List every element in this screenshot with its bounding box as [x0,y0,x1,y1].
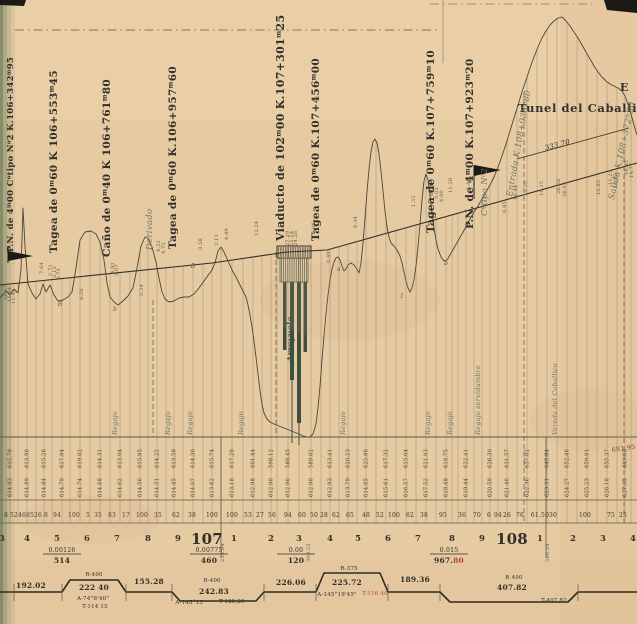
terrain-marker: b [444,260,448,267]
watercourse-label: Regajo [446,411,454,436]
grade-elevation: 614.56 [138,478,144,497]
alignment-label: A-145°19'45" [316,592,357,598]
profile-sheet: ArroyueloTunel del Caballico.333.70EP.N.… [0,0,637,624]
partial-distance: 100 [226,512,238,519]
grade-elevation: 614.79 [60,478,66,497]
partial-distance: 62 [332,512,340,519]
alignment-label: 189.36 [400,575,430,584]
grade-elevation: 614.45 [172,478,178,497]
grade-elevation: 619.44 [464,478,470,497]
ordinate-height: 0.58 [198,238,204,250]
watercourse-label: Regajo [111,411,119,436]
watercourse-label: Regajo [424,411,432,436]
alignment-label: R-400 [85,572,103,578]
ordinate-height: 2.13 [214,234,220,246]
alignment-label: 407.82 [497,583,527,592]
ground-elevation: 589.02 [309,449,315,468]
ordinate-height: 18.15 [539,181,545,196]
station-number: 4 [24,534,30,544]
alignment-label: T-116 40 [362,591,388,597]
grade-elevation: 614.93 [8,478,14,497]
ground-elevation: 614.31 [98,449,104,468]
partial-distance: 95 [439,512,447,519]
ground-elevation: 618.75 [444,449,450,468]
alignment-label: 192.02 [16,581,46,590]
chainage-note: 586.54 [545,543,551,562]
ground-elevation: 655.37 [605,449,611,468]
grade-elevation: 612.90 [269,478,275,497]
ordinate-height: 11.42 [11,289,17,304]
paper-stain [20,496,160,544]
terrain-marker: B [190,263,196,270]
ground-elevation: 613.04 [118,449,124,468]
grade-elevation: 614.51 [155,478,161,497]
grade-elevation: 627.05 [623,478,629,497]
ordinate-height: 16.85 [596,180,602,195]
alignment-label: 242.83 [199,587,229,596]
watercourse-label: Regajo [339,411,347,436]
grade-elevation: 612.93 [328,478,334,497]
grade-elevation: 614.07 [191,478,197,497]
alignment-label: 222 40 [79,583,109,592]
partial-distance: 61.50 [531,512,549,519]
station-number: 9 [175,534,181,544]
grade-elevation: 613.62 [210,478,216,497]
binding-gutter [0,0,3,624]
ordinate-height: 24.26 [293,231,299,246]
station-number: 4 [630,534,636,544]
partial-distance: 27 [256,512,264,519]
station-number: 8 [449,534,455,544]
partial-distance: 70 [473,512,481,519]
partial-distance: 65 [346,512,354,519]
station-number: 9 [479,534,485,544]
ground-elevation: 615.95 [138,449,144,468]
ordinate-height: 8.56 [79,288,85,300]
watercourse-label: Regajo [237,411,245,436]
station-number: 3 [0,534,5,544]
ground-elevation: 617.32 [384,449,390,468]
grade-elevation: 616.57 [404,478,410,497]
ground-elevation: 620.23 [346,449,352,468]
grade-elevation: 612.90 [286,478,292,497]
partial-distance: 53 [244,512,252,519]
gradient-length: 514 [54,556,70,565]
ordinate-height: 1.52 [411,195,417,207]
grade-elevation: 625.23 [585,478,591,497]
structure-label: Tagea de 0m60 K 106+553m45 [48,70,60,253]
structure-label: Tagea de 0m60 K.107+759m10 [425,50,437,233]
grade-elevation: 613.79 [346,478,352,497]
ordinate-height: 6.85 [502,201,508,213]
ordinate-height: 10.44 [513,185,519,200]
alignment-label: A-74°8'40" [76,596,109,602]
station-number: 7 [415,534,421,544]
alignment-label: T-114 15 [82,604,108,610]
ground-elevation: 613.41 [328,449,334,468]
station-number: 4 [327,534,333,544]
watercourse-label: Regajo [164,411,172,436]
ordinate-height: 5.45 [466,178,472,190]
gradient-value: 0.015 [440,547,459,554]
gradient-value: 0.00 [289,547,304,554]
ordinate-height: 5.34 [139,284,145,296]
top-left-corner-mark [0,0,26,6]
partial-distance: 38 [420,512,428,519]
ordinate-height: 11.05 [613,173,619,188]
ground-elevation: 615.26 [42,449,48,468]
kilometre-number: 107 [191,530,223,548]
partial-distance: 62 [406,512,414,519]
alignment-label: 226.06 [276,578,306,587]
gradient-length: 967.80 [434,556,464,565]
station-number: 6 [385,534,391,544]
grade-elevation: 617.52 [424,478,430,497]
alignment-label: R 400 [505,575,523,581]
partial-distance: 48 [362,512,370,519]
alignment-label: R-400 [203,578,221,584]
station-number: 1 [231,534,237,544]
ground-elevation: 617.84 [60,449,66,468]
chainage-note: 309.55 [306,543,312,562]
partial-distance: 8 [4,512,8,519]
alignment-label: 225.72 [332,578,362,587]
ordinate-height: 3.73 [56,268,62,280]
grade-elevation: 622.36 [525,478,531,497]
ordinate-height: 2.07 [114,264,120,276]
ground-elevation: 614.30 [191,449,197,468]
partial-distance: 62 [172,512,180,519]
grade-elevation: 614.62 [118,478,124,497]
grade-elevation: 624.27 [565,478,571,497]
alignment-label: R-375 [340,566,358,572]
watercourse-label: Regajo [186,411,194,436]
partial-distance: 28 [320,512,328,519]
structure-label: P.N. de 4m00 Cotipo No2 K.106+342m95 [6,57,16,252]
terrain-marker: b [113,306,117,313]
alignment-label: A-145°13' [174,600,204,606]
grade-elevation: 620.59 [488,478,494,497]
partial-distance: 76 [516,512,524,519]
ordinate-height: 5.06 [311,222,317,234]
station-number: 3 [296,534,302,544]
partial-distance: 100 [206,512,218,519]
ordinate-height: 4.49 [224,228,230,240]
grade-elevation: 613.18 [230,478,236,497]
grade-elevation: 612.90 [309,478,315,497]
ground-elevation: 615.74 [210,449,216,468]
ground-elevation: 598.12 [269,449,275,468]
ground-elevation: 631.57 [505,449,511,468]
station-number: 5 [355,534,361,544]
ground-elevation: 621.93 [424,449,430,468]
ground-elevation: 615.78 [8,449,14,468]
station-number: 2 [570,534,576,544]
tunnel-exit-letter: E [620,81,629,94]
partial-distance: 100 [579,512,591,519]
ground-elevation: 613.58 [172,449,178,468]
partial-distance: 50 [310,512,318,519]
gradient-value: 0.00775 [196,547,223,554]
grade-elevation: 614.84 [42,478,48,497]
ground-elevation: 625.86 [364,449,370,468]
ordinate-height: 14.77 [629,163,635,178]
ordinate-height: 11.28 [448,178,454,193]
partial-distance: 100 [388,512,400,519]
watercourse-label: Regajo servidumbre [474,365,482,436]
ordinate-height: 13.24 [254,221,260,236]
ground-elevation: 601.44 [251,449,257,468]
ground-elevation: 614.22 [155,449,161,468]
grade-elevation: 621.40 [505,478,511,497]
grade-elevation: 626.18 [605,478,611,497]
ground-elevation: 622.41 [464,449,470,468]
alignment-label: T-407 82 [541,598,567,604]
ground-elevation: 613.90 [25,449,31,468]
partial-distance: 25 [619,512,627,519]
partial-distance: 52 [10,512,18,519]
ordinate-height: 4.00 [439,190,445,202]
structure-label: Tagea de 0m60 K.106+957m60 [167,66,179,249]
ground-elevation: 659.91 [585,449,591,468]
grade-elevation: 615.61 [384,478,390,497]
grade-elevation: 614.74 [78,478,84,497]
ground-elevation: 588.45 [286,449,292,468]
ordinate-height: 8.34 [353,216,359,228]
grade-elevation: 612.98 [251,478,257,497]
structure-label: Derivado [145,209,155,251]
tunnel-label: Tunel del Caballico. [518,101,637,115]
ordinate-height: 4.72 [161,242,167,254]
gradient-length: 120 [288,556,304,565]
ground-elevation: 615.04 [404,449,410,468]
grade-elevation: 614.89 [25,478,31,497]
ground-elevation: 645.84 [545,449,551,468]
paper-stain [260,260,440,340]
ordinate-height: 5.75 [482,196,488,208]
ground-elevation: 652.46 [565,449,571,468]
grade-elevation: 614.68 [98,478,104,497]
grade-elevation: 623.31 [545,478,551,497]
gradient-length: 460 [201,556,217,565]
kilometre-number: 108 [496,530,528,548]
partial-distance: 60 [298,512,306,519]
ground-elevation: 637.02 [525,449,531,468]
structure-label: Tagea de 0m60 K.107+456m00 [310,58,322,241]
station-number: 8 [145,534,151,544]
station-number: 1 [537,534,543,544]
terrain-marker: B [57,301,63,308]
partial-distance: 6 [487,512,491,519]
ground-elevation: 617.26 [230,449,236,468]
structure-label: Caño de 0m40 K 106+761m80 [101,79,113,257]
grade-elevation: 614.65 [364,478,370,497]
ordinate-height: 26.02 [562,182,568,197]
ordinate-height: 13.15 [523,181,529,196]
partial-distance: 38 [188,512,196,519]
station-number: 2 [268,534,274,544]
chainage-note: 233.84 [220,543,226,562]
partial-distance: 30 [549,512,557,519]
partial-distance: 36 [458,512,466,519]
ordinate-height: 7.64 [39,262,45,274]
partial-distance: 94 [494,512,502,519]
structure-label: Viaducto de 102m00 K.107+301m25 [274,15,287,242]
partial-distance: 26 [503,512,511,519]
partial-distance: 75 [607,512,615,519]
alignment-label: T-125,29 [219,599,245,605]
station-number: 3 [600,534,606,544]
alignment-label: 155.28 [134,577,164,586]
scanned-profile-sheet: ArroyueloTunel del Caballico.333.70EP.N.… [0,0,637,624]
ground-elevation: 619.02 [78,449,84,468]
partial-distance: 56 [268,512,276,519]
grade-elevation: 618.48 [444,478,450,497]
partial-distance: 94 [284,512,292,519]
structure-label: P.N. de 4m00 K.107+923m20 [464,58,476,229]
gradient-value: 0.00126 [49,547,76,554]
ground-elevation: 626.30 [488,449,494,468]
partial-distance: 52 [376,512,384,519]
